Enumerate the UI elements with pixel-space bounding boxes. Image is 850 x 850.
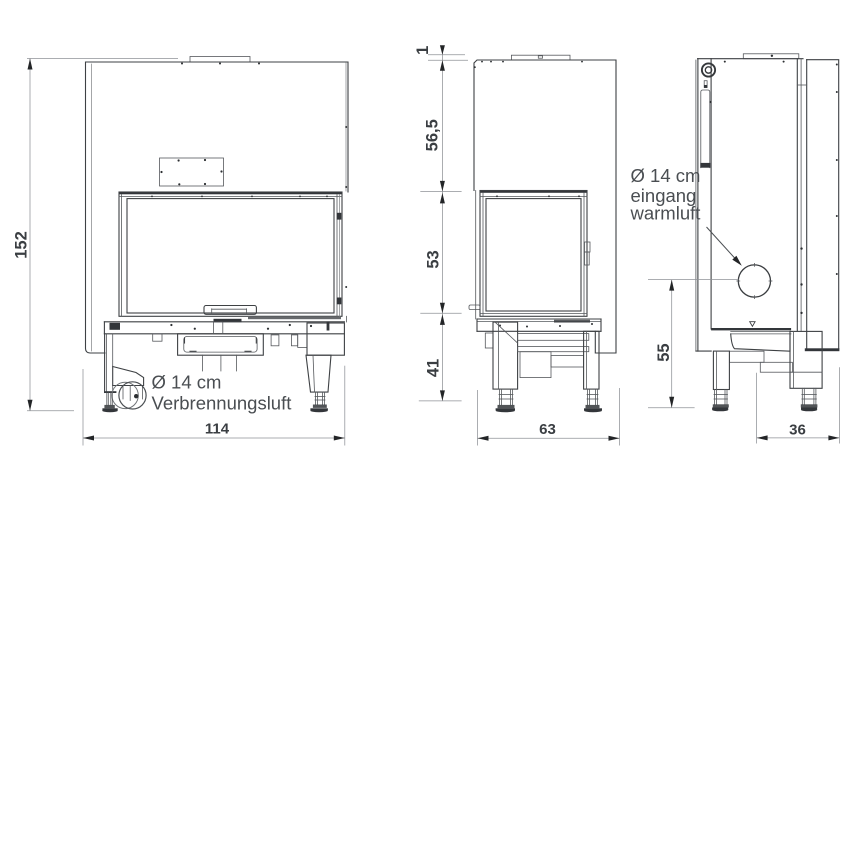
svg-text:63: 63	[539, 421, 556, 438]
svg-text:56,5: 56,5	[424, 119, 442, 151]
svg-text:114: 114	[205, 421, 230, 438]
svg-text:1: 1	[414, 46, 432, 55]
svg-text:41: 41	[424, 359, 442, 377]
svg-text:152: 152	[12, 231, 30, 259]
svg-text:Ø 14 cm: Ø 14 cm	[152, 371, 222, 392]
svg-text:Verbrennungsluft: Verbrennungsluft	[152, 392, 292, 413]
svg-text:55: 55	[655, 343, 673, 361]
svg-text:Ø 14 cm: Ø 14 cm	[631, 165, 701, 186]
svg-text:53: 53	[424, 250, 442, 268]
svg-text:36: 36	[789, 422, 806, 439]
svg-text:warmluft: warmluft	[630, 202, 701, 223]
